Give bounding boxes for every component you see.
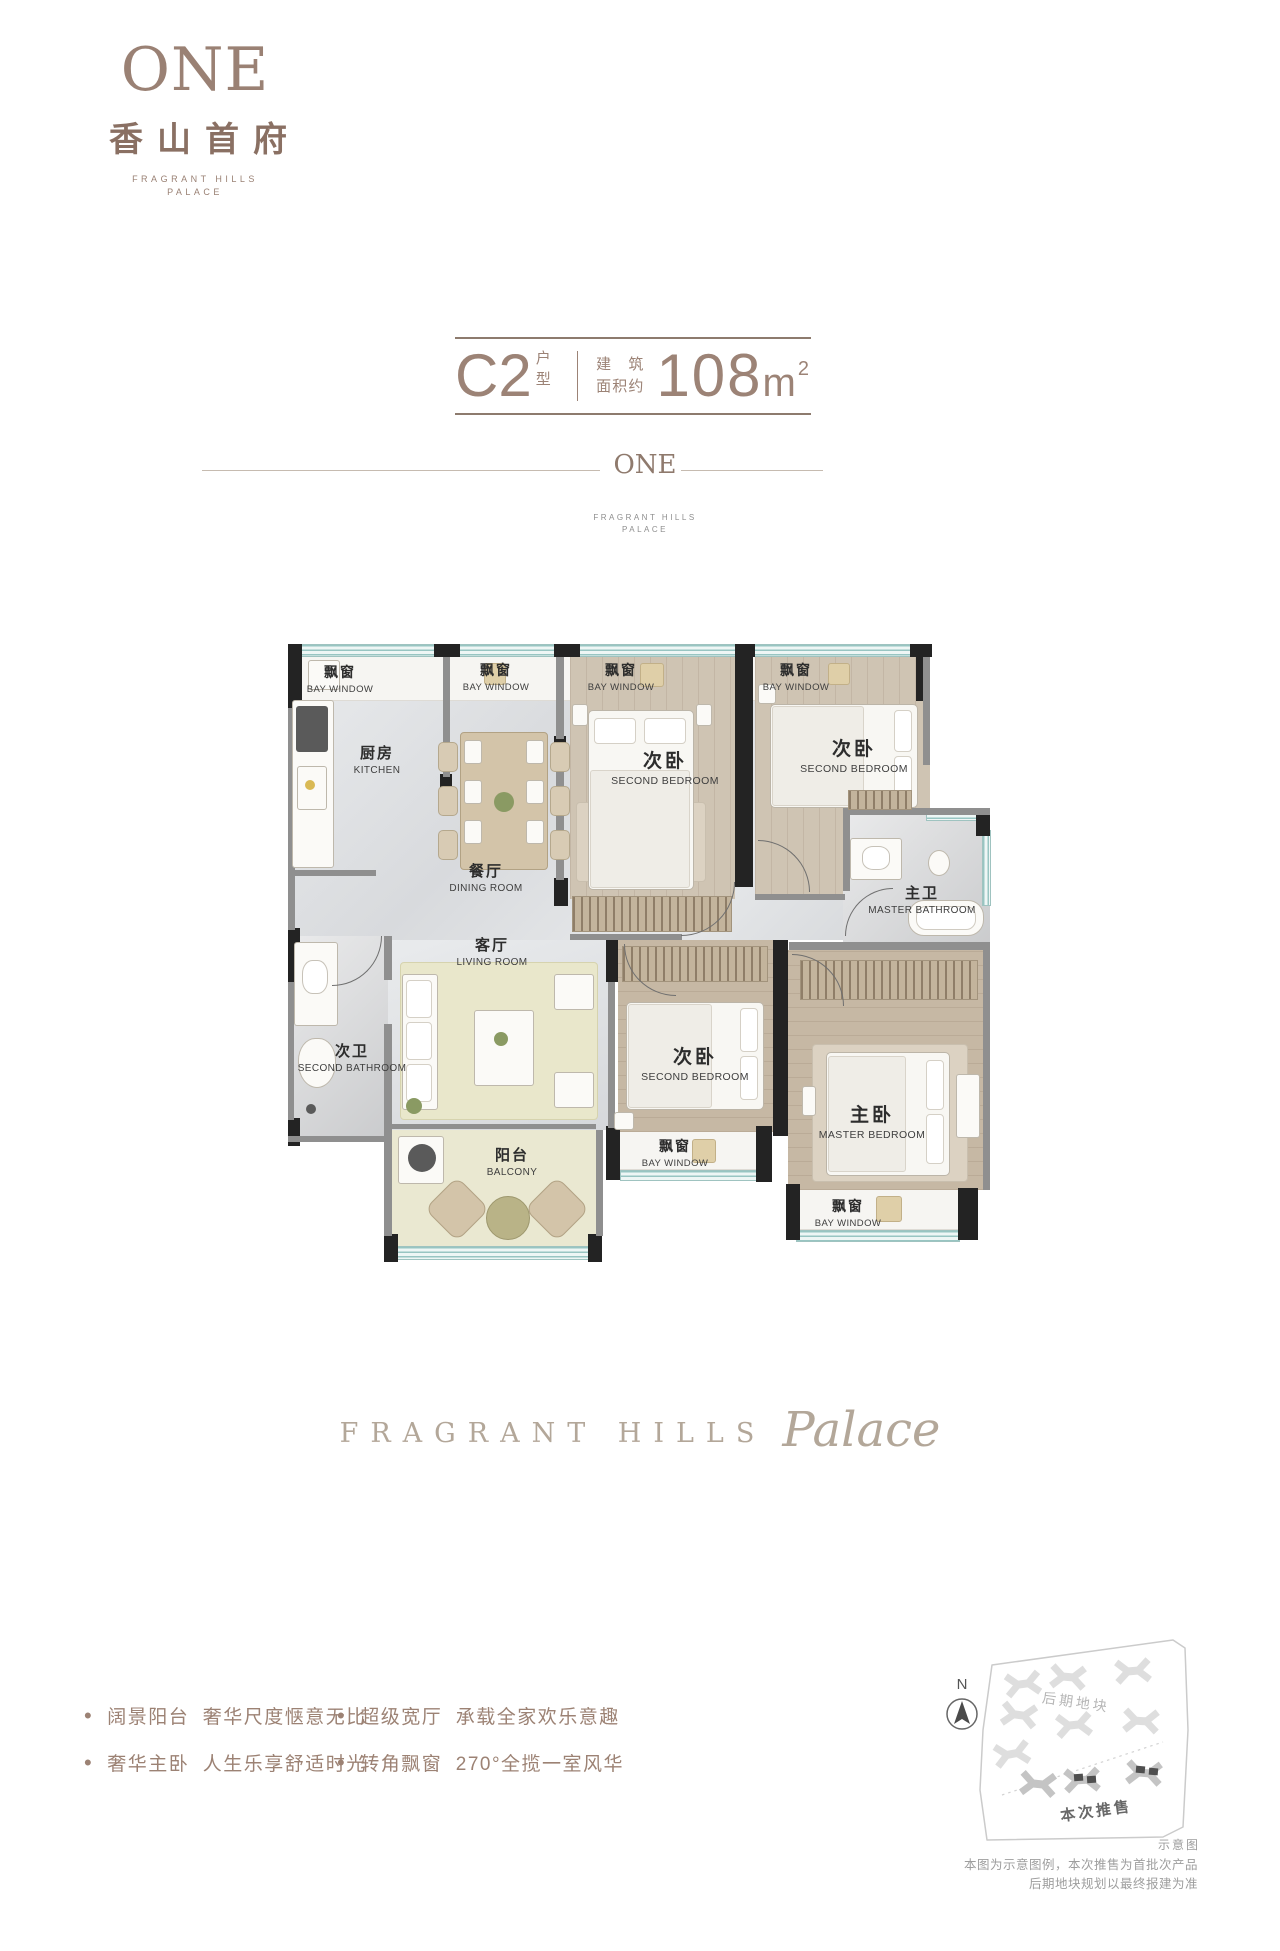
wall-segment	[288, 1136, 386, 1142]
sold-unit-marker	[1087, 1776, 1096, 1784]
area-value: 108m2	[656, 339, 811, 413]
plant	[406, 1098, 422, 1114]
blanket	[590, 770, 690, 888]
site-caption: 示意图	[1158, 1836, 1200, 1853]
bay-window-cn: 飘窗	[763, 660, 829, 680]
room-cn: 厨房	[354, 742, 401, 763]
divider-line-left	[202, 470, 600, 471]
wall-segment	[735, 644, 755, 657]
feature-text: 超级宽厅 承载全家欢乐意趣	[360, 1702, 620, 1729]
bay-window-label: 飘窗 BAY WINDOW	[307, 662, 373, 695]
wall-segment	[789, 942, 990, 950]
tagline-script: Palace	[782, 1402, 940, 1458]
divider-sub-line1: FRAGRANT HILLS	[593, 512, 696, 524]
wall-segment	[570, 934, 682, 940]
faucet-dot	[305, 780, 315, 790]
area-unit: m	[763, 361, 798, 405]
dining-chair	[438, 830, 458, 860]
area-label-line2: 面积约	[596, 376, 644, 398]
bay-window-en: BAY WINDOW	[642, 1158, 708, 1169]
bullet-icon: •	[337, 1750, 346, 1776]
bay-window-label: 飘窗 BAY WINDOW	[815, 1196, 881, 1229]
area-label: 建筑 面积约	[596, 354, 644, 398]
wall-segment	[773, 940, 788, 1136]
sofa-cushion	[406, 1022, 432, 1060]
divider-sub-text: FRAGRANT HILLS PALACE	[593, 512, 696, 536]
dining-chair	[438, 786, 458, 816]
room-en: BALCONY	[487, 1167, 538, 1178]
dining-plant	[494, 792, 514, 812]
bay-window-label: 飘窗 BAY WINDOW	[463, 660, 529, 693]
bullet-icon: •	[337, 1703, 346, 1729]
bay-window-en: BAY WINDOW	[463, 682, 529, 693]
bullet-icon: •	[84, 1703, 93, 1729]
room-en: MASTER BEDROOM	[819, 1129, 926, 1141]
nightstand	[572, 704, 588, 726]
dining-chair	[550, 786, 570, 816]
room-label-dining: 餐厅 DINING ROOM	[449, 860, 522, 894]
sofa-cushion	[406, 980, 432, 1018]
bay-window-cn: 飘窗	[642, 1136, 708, 1156]
balcony-table	[486, 1196, 530, 1240]
unit-tag: 户型	[536, 347, 561, 389]
wall-segment	[556, 762, 564, 880]
brand-logo-en: FRAGRANT HILLS PALACE	[95, 173, 295, 199]
window-glazing	[620, 1170, 766, 1181]
bay-window-en: BAY WINDOW	[588, 682, 654, 693]
room-label-second-bath: 次卫 SECOND BATHROOM	[298, 1040, 407, 1074]
room-cn: 次卧	[611, 746, 719, 773]
room-label-master-bath: 主卫 MASTER BATHROOM	[868, 882, 975, 916]
area-superscript: 2	[798, 358, 811, 380]
feature-text: 奢华主卧 人生乐享舒适时光	[107, 1749, 367, 1776]
window-glazing	[390, 1246, 596, 1260]
toilet	[928, 850, 950, 876]
bullet-icon: •	[84, 1750, 93, 1776]
kitchen-cooktop	[296, 706, 328, 752]
wall-segment	[608, 982, 615, 1128]
feature-item: • 奢华主卧 人生乐享舒适时光	[84, 1749, 367, 1776]
wall-segment	[958, 1188, 978, 1240]
disclaimer-line1: 本图为示意图例，本次推售为首批次产品	[964, 1856, 1198, 1875]
room-label-second-bedroom-b: 次卧 SECOND BEDROOM	[800, 734, 908, 775]
bay-window-cn: 飘窗	[588, 660, 654, 680]
sold-unit-marker	[1149, 1768, 1159, 1776]
pillow	[926, 1114, 944, 1164]
wall-segment	[923, 657, 930, 765]
pillow	[644, 718, 686, 744]
feature-text: 转角飘窗 270°全揽一室风华	[360, 1749, 624, 1776]
bay-window-en: BAY WINDOW	[307, 684, 373, 695]
feature-text: 阔景阳台 奢华尺度惬意无比	[107, 1702, 367, 1729]
unit-code: C2	[455, 346, 532, 406]
wall-segment	[384, 1234, 398, 1262]
wardrobe	[848, 790, 912, 810]
dining-plate	[526, 740, 544, 764]
room-cn: 主卧	[819, 1100, 926, 1127]
bench	[802, 1086, 816, 1116]
room-label-living: 客厅 LIVING ROOM	[456, 934, 527, 968]
shower-head	[306, 1104, 316, 1114]
wall-segment	[384, 936, 392, 980]
wall-segment	[554, 878, 568, 906]
room-cn: 阳台	[487, 1144, 538, 1165]
tagline-caps: FRAGRANT HILLS	[340, 1418, 767, 1449]
wall-segment	[606, 1126, 620, 1180]
wall-segment	[556, 657, 564, 739]
brand-logo: ONE 香山首府 FRAGRANT HILLS PALACE	[95, 38, 295, 199]
poster-page: ONE 香山首府 FRAGRANT HILLS PALACE C2 户型 建筑 …	[0, 0, 1280, 1951]
sold-unit-marker	[1074, 1774, 1083, 1782]
disclaimer-line2: 后期地块规划以最终报建为准	[964, 1875, 1198, 1894]
room-en: SECOND BEDROOM	[641, 1071, 749, 1083]
sofa-cushion	[406, 1064, 432, 1102]
wall-segment	[596, 1130, 603, 1236]
dining-plate	[464, 820, 482, 844]
wall-segment	[983, 950, 990, 1190]
bay-window-cn: 飘窗	[463, 660, 529, 680]
room-label-second-bedroom-a: 次卧 SECOND BEDROOM	[611, 746, 719, 787]
dining-plate	[464, 740, 482, 764]
room-label-master-bedroom: 主卧 MASTER BEDROOM	[819, 1100, 926, 1141]
divider-line-right	[681, 470, 823, 471]
washer-door	[408, 1144, 436, 1172]
wash-basin	[302, 960, 328, 994]
wall-segment	[755, 894, 845, 900]
window-glazing	[982, 830, 991, 906]
pillow	[594, 718, 636, 744]
coffee-table	[474, 1010, 534, 1086]
room-en: SECOND BATHROOM	[298, 1063, 407, 1074]
divider-sub-line2: PALACE	[593, 524, 696, 536]
nightstand	[696, 704, 712, 726]
room-en: LIVING ROOM	[456, 957, 527, 968]
brand-logo-one: ONE	[95, 38, 295, 102]
floor-plan: 飘窗 BAY WINDOW 飘窗 BAY WINDOW 飘窗 BAY WINDO…	[288, 644, 990, 1265]
bay-sill-decor	[828, 663, 850, 685]
table-decor	[494, 1032, 508, 1046]
wall-segment	[588, 1234, 602, 1262]
room-en: SECOND BEDROOM	[611, 775, 719, 787]
wall-segment	[735, 657, 753, 887]
brand-tagline: FRAGRANT HILLS Palace	[0, 1398, 1280, 1454]
room-cn: 次卧	[800, 734, 908, 761]
bay-window-label: 飘窗 BAY WINDOW	[588, 660, 654, 693]
bay-window-label: 飘窗 BAY WINDOW	[763, 660, 829, 693]
window-glazing	[796, 1230, 960, 1242]
divider-mini-logo: ONE	[613, 450, 676, 480]
wall-segment	[288, 644, 302, 708]
room-cn: 主卫	[868, 882, 975, 903]
room-label-kitchen: 厨房 KITCHEN	[354, 742, 401, 776]
wall-segment	[434, 644, 460, 657]
title-divider-line	[577, 351, 578, 401]
room-cn: 次卫	[298, 1040, 407, 1061]
dining-chair	[438, 742, 458, 772]
bay-window-cn: 飘窗	[307, 662, 373, 682]
room-en: KITCHEN	[354, 765, 401, 776]
feature-item: • 转角飘窗 270°全揽一室风华	[337, 1749, 624, 1776]
dining-plate	[464, 780, 482, 804]
wall-segment	[554, 644, 580, 657]
room-cn: 餐厅	[449, 860, 522, 881]
armchair	[554, 1072, 594, 1108]
dresser	[956, 1074, 980, 1138]
feature-item: • 超级宽厅 承载全家欢乐意趣	[337, 1702, 620, 1729]
wall-segment	[384, 1130, 392, 1236]
wall-segment	[288, 870, 376, 876]
brand-logo-cn: 香山首府	[109, 112, 295, 161]
wall-segment	[843, 815, 850, 891]
window-glazing	[288, 644, 930, 657]
bay-window-label: 飘窗 BAY WINDOW	[642, 1136, 708, 1169]
bay-window-en: BAY WINDOW	[763, 682, 829, 693]
dining-plate	[526, 780, 544, 804]
room-label-balcony: 阳台 BALCONY	[487, 1144, 538, 1178]
armchair	[554, 974, 594, 1010]
dining-plate	[526, 820, 544, 844]
dining-chair	[550, 830, 570, 860]
wall-segment	[390, 1124, 596, 1129]
room-en: MASTER BATHROOM	[868, 905, 975, 916]
room-cn: 客厅	[456, 934, 527, 955]
room-label-second-bedroom-c: 次卧 SECOND BEDROOM	[641, 1042, 749, 1083]
room-cn: 次卧	[641, 1042, 749, 1069]
wall-segment	[786, 1184, 800, 1240]
wall-segment	[606, 940, 618, 982]
brand-logo-en-line1: FRAGRANT HILLS	[95, 173, 295, 186]
wall-segment	[756, 1126, 772, 1182]
area-number: 108	[656, 342, 762, 409]
feature-item: • 阔景阳台 奢华尺度惬意无比	[84, 1702, 367, 1729]
disclaimer: 本图为示意图例，本次推售为首批次产品 后期地块规划以最终报建为准	[964, 1856, 1198, 1894]
nightstand	[614, 1112, 634, 1130]
room-en: DINING ROOM	[449, 883, 522, 894]
room-en: SECOND BEDROOM	[800, 763, 908, 775]
bay-window-cn: 飘窗	[815, 1196, 881, 1216]
unit-title: C2 户型 建筑 面积约 108m2	[455, 337, 811, 415]
dining-chair	[550, 742, 570, 772]
bay-window-en: BAY WINDOW	[815, 1218, 881, 1229]
wall-segment	[910, 644, 932, 657]
wash-basin	[862, 846, 890, 870]
area-label-line1: 建筑	[596, 354, 644, 376]
brand-logo-en-line2: PALACE	[95, 186, 295, 199]
pillow	[926, 1060, 944, 1110]
sold-unit-marker	[1136, 1766, 1146, 1774]
